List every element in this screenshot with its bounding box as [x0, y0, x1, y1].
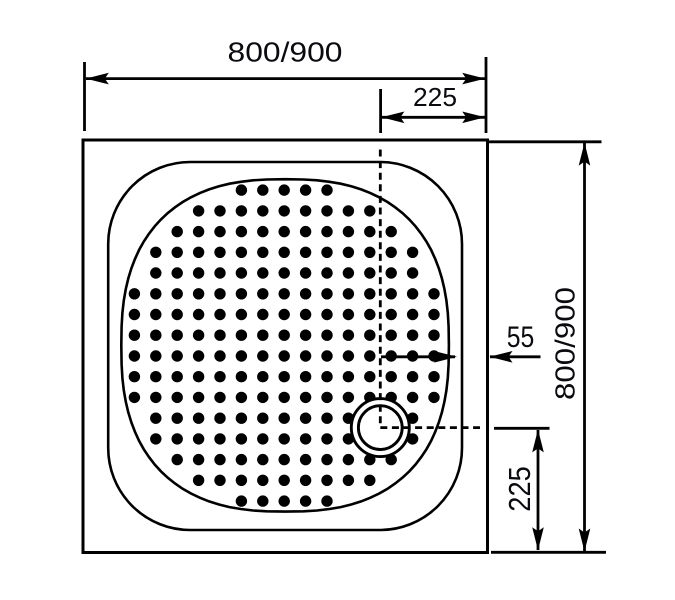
svg-text:55: 55	[507, 321, 535, 354]
svg-text:225: 225	[413, 84, 457, 112]
svg-text:225: 225	[502, 466, 537, 511]
svg-text:800/900: 800/900	[550, 287, 581, 400]
svg-text:800/900: 800/900	[228, 37, 343, 68]
